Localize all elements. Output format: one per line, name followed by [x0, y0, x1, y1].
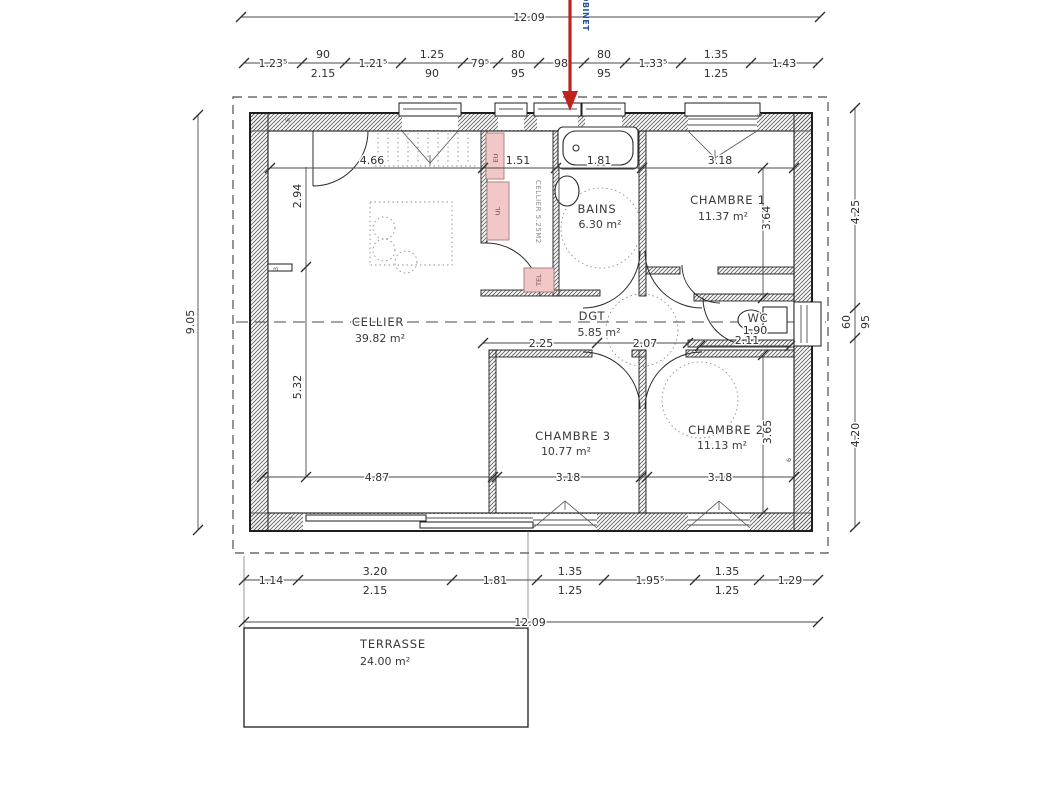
- dim-bottom-overall: 12.09: [514, 616, 546, 629]
- dim-int-365: 3.65: [761, 420, 774, 445]
- dim-bot-3: 1.81: [483, 574, 508, 587]
- dim-int-466: 4.66: [360, 154, 385, 167]
- dim-bot-5: 1.95⁵: [636, 574, 665, 587]
- chambre2-area: 11.13 m²: [697, 439, 747, 452]
- dim-bot-2a: 3.20: [363, 565, 388, 578]
- dim-right-3: 4.20: [849, 423, 862, 448]
- dim-int-318top: 3.18: [708, 154, 733, 167]
- annotation-label: ROBINET: [581, 0, 590, 31]
- washbasin: [555, 176, 579, 206]
- window-wc-right: [794, 302, 821, 346]
- dim-bot-4b: 1.25: [558, 584, 583, 597]
- wall-tag-4: 3: [287, 517, 295, 521]
- terrasse-area: 24.00 m²: [360, 655, 410, 668]
- dim-right-2a: 60: [840, 315, 853, 329]
- chambre3-label: CHAMBRE 3: [535, 429, 611, 443]
- chambre2-label: CHAMBRE 2: [688, 423, 764, 437]
- dim-int-487: 4.87: [365, 471, 390, 484]
- dim-wc-211: 2.11: [735, 334, 760, 347]
- scanned-floor-plan-page: EU UL TEL CELLIER 5.25M2 TERRASSE 24.00 …: [0, 0, 1043, 800]
- table-and-chairs: [370, 202, 452, 273]
- dgt-door-se: [645, 352, 702, 409]
- dim-left-overall: 9.05: [184, 310, 197, 335]
- eu-box-label: EU: [492, 153, 500, 162]
- dim-int-207: 2.07: [633, 337, 658, 350]
- dim-int-294: 2.94: [291, 184, 304, 209]
- dim-int-318c3: 3.18: [556, 471, 581, 484]
- room-labels: CELLIER 39.82 m² DGT 5.85 m² BAINS 6.30 …: [352, 193, 769, 458]
- dim-top-9: 1.33⁵: [639, 57, 668, 70]
- stair-treads: [375, 133, 478, 166]
- dgt-door-nw: [583, 251, 640, 308]
- cellier-small-label: CELLIER 5.25M2: [534, 180, 542, 244]
- dim-int-225: 2.25: [529, 337, 554, 350]
- dim-bot-4a: 1.35: [558, 565, 583, 578]
- dgt-door-sw: [583, 352, 640, 409]
- dim-top-overall: 12.09: [513, 11, 545, 24]
- floor-plan-drawing: EU UL TEL CELLIER 5.25M2 TERRASSE 24.00 …: [0, 0, 1043, 800]
- tel-box-label: TEL: [535, 274, 543, 287]
- wc-label: WC: [747, 311, 768, 325]
- window-chambre1: [685, 103, 760, 161]
- dim-int-181: 1.81: [587, 154, 612, 167]
- chambre1-label: CHAMBRE 1: [690, 193, 766, 207]
- terrasse-label: TERRASSE: [359, 637, 426, 651]
- dim-top-3: 1.21⁵: [359, 57, 388, 70]
- dim-top-8b: 95: [597, 67, 611, 80]
- dim-bot-7: 1.29: [778, 574, 803, 587]
- ul-box-label: UL: [494, 206, 502, 215]
- cellier-area: 39.82 m²: [355, 332, 405, 345]
- dim-top-7: 98: [554, 57, 568, 70]
- dim-top-2a: 90: [316, 48, 330, 61]
- window-small-1: [495, 103, 527, 116]
- dim-bot-2b: 2.15: [363, 584, 388, 597]
- wall-tag-5: 6: [785, 458, 793, 462]
- dgt-door-ne: [645, 251, 702, 308]
- chambre3-area: 10.77 m²: [541, 445, 591, 458]
- dgt-area: 5.85 m²: [577, 326, 620, 339]
- dim-top-1: 1.23⁵: [259, 57, 288, 70]
- terrasse-outline: [244, 531, 528, 727]
- dim-int-364: 3.64: [760, 206, 773, 231]
- dim-top-10b: 1.25: [704, 67, 729, 80]
- dim-bot-6a: 1.35: [715, 565, 740, 578]
- dim-right-2b: 95: [859, 315, 872, 329]
- dim-top-2b: 2.15: [311, 67, 336, 80]
- cellier-label: CELLIER: [352, 315, 404, 329]
- dim-int-318c2: 3.18: [708, 471, 733, 484]
- dim-top-6a: 80: [511, 48, 525, 61]
- window-bath: [582, 103, 625, 116]
- bains-area: 6.30 m²: [578, 218, 621, 231]
- window-small-2: [534, 103, 581, 116]
- dim-bot-6b: 1.25: [715, 584, 740, 597]
- wall-tag-2: 3: [272, 267, 280, 271]
- roof-outline-dashed: [233, 97, 828, 553]
- dim-top-4b: 90: [425, 67, 439, 80]
- dim-right-1: 4.25: [849, 200, 862, 225]
- dgt-label: DGT: [579, 309, 606, 323]
- dim-top-6b: 95: [511, 67, 525, 80]
- chambre1-area: 11.37 m²: [698, 210, 748, 223]
- dim-top-10a: 1.35: [704, 48, 729, 61]
- dim-top-11: 1.43: [772, 57, 797, 70]
- dim-top-8a: 80: [597, 48, 611, 61]
- dim-int-532: 5.32: [291, 375, 304, 400]
- bains-label: BAINS: [577, 202, 616, 216]
- dim-int-151: 1.51: [506, 154, 531, 167]
- dim-top-5: 79⁵: [471, 57, 489, 70]
- dim-bot-1: 1.14: [259, 574, 284, 587]
- dim-top-4a: 1.25: [420, 48, 445, 61]
- wall-tag-1: 6: [284, 118, 292, 122]
- wall-tag-3: 6: [756, 113, 764, 117]
- wall-tags: 6 3 6 3 6: [272, 113, 793, 521]
